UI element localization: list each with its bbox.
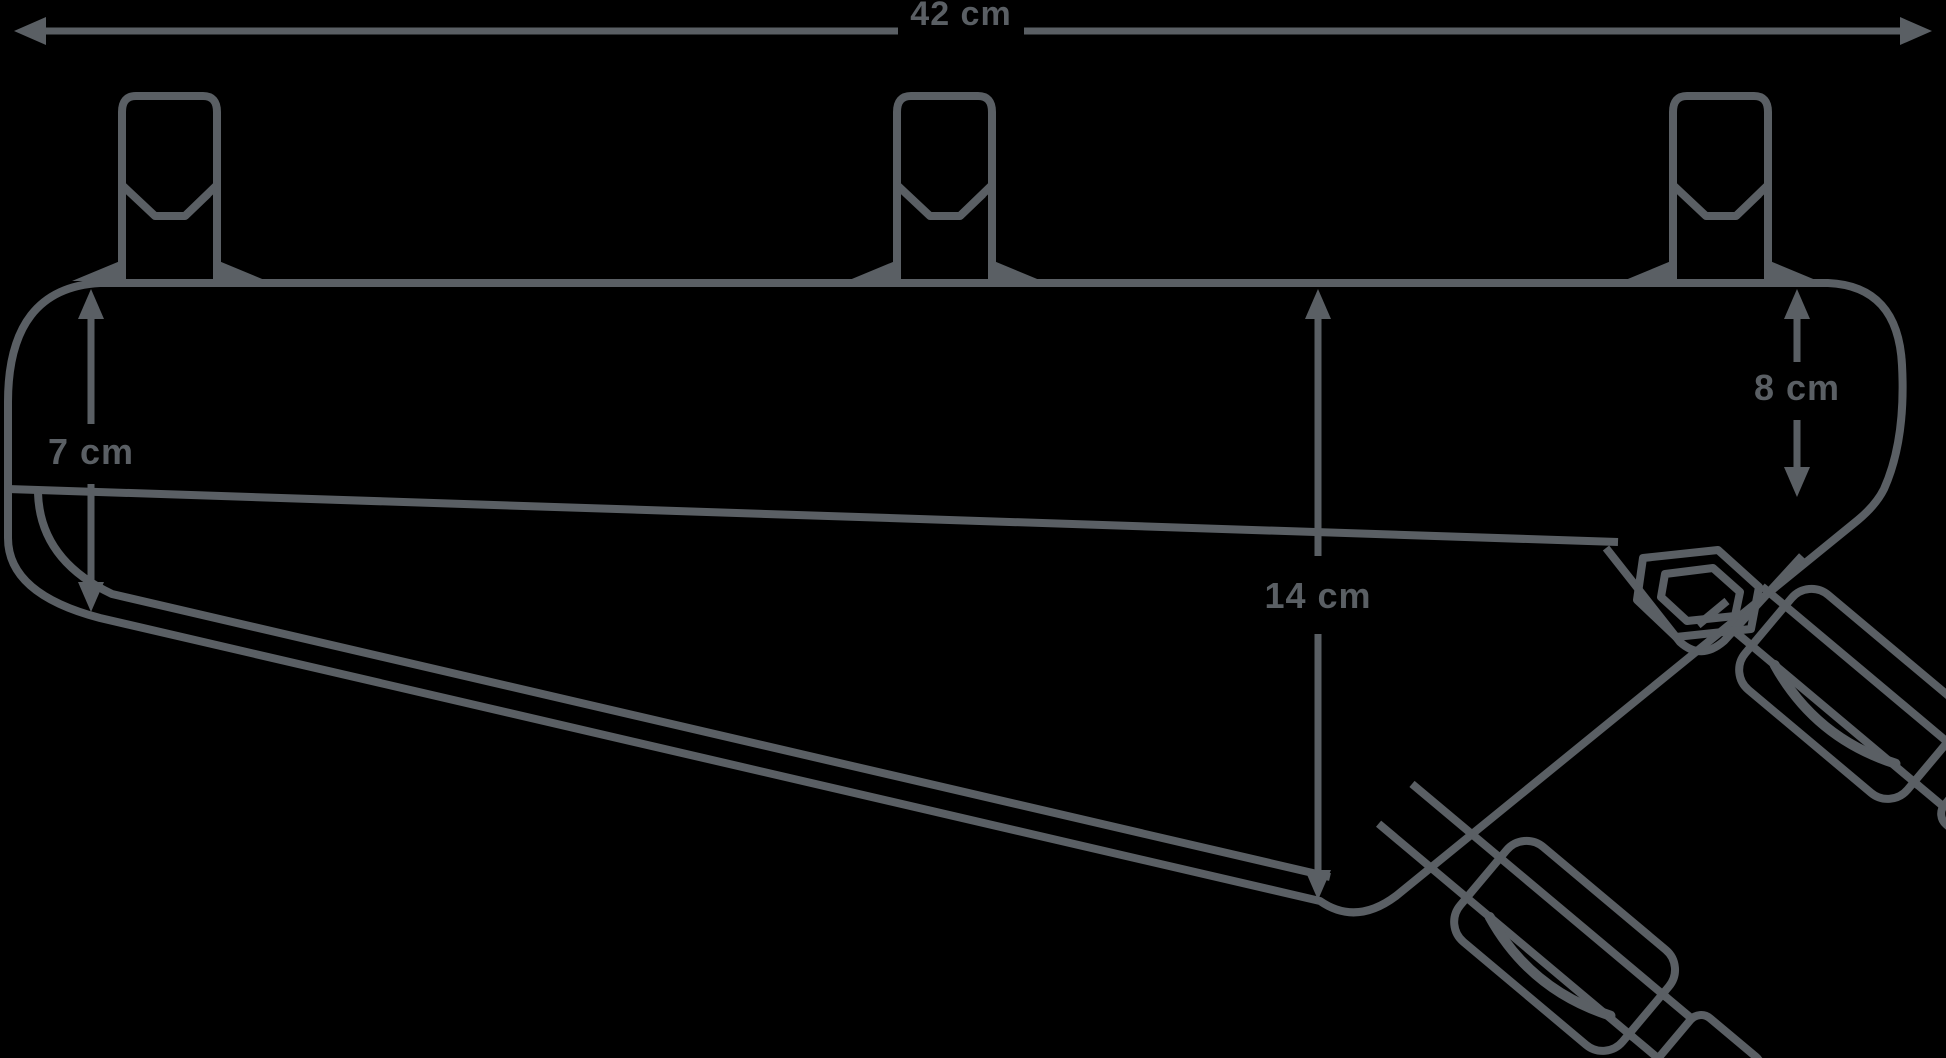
velcro-strap-right bbox=[1623, 96, 1818, 283]
strap-band-edge bbox=[1412, 784, 1667, 998]
strap-tail-edge bbox=[1663, 994, 1692, 1018]
arrow-up-icon bbox=[1784, 289, 1810, 319]
zipper-seam-line bbox=[8, 489, 1618, 542]
buckle-strap-lower bbox=[1355, 756, 1782, 1058]
right-height-label: 8 cm bbox=[1754, 367, 1840, 408]
buckle-strap-upper bbox=[1706, 559, 1946, 891]
ladderlock-buckle-inner bbox=[1661, 568, 1740, 621]
frame-bag-dimension-diagram: 42 cm bbox=[0, 0, 1946, 1058]
strap-tail-edge bbox=[1629, 1034, 1658, 1058]
left-height-dimension: 7 cm bbox=[48, 289, 134, 612]
arrow-down-icon bbox=[78, 582, 104, 612]
right-height-dimension: 8 cm bbox=[1754, 289, 1840, 497]
strap-gusset-right bbox=[214, 259, 267, 281]
strap-gusset-right bbox=[1765, 259, 1818, 281]
center-height-dimension: 14 cm bbox=[1264, 289, 1371, 900]
strap-gusset-right bbox=[989, 259, 1042, 281]
arrow-up-icon bbox=[78, 289, 104, 319]
strap-fold-inner-line bbox=[185, 194, 208, 216]
bottom-panel-seam-line bbox=[38, 493, 1330, 877]
bag-body bbox=[8, 283, 1903, 912]
width-dimension-arrow: 42 cm bbox=[14, 0, 1932, 45]
strap-outline bbox=[897, 96, 992, 283]
strap-tail-edge bbox=[1914, 782, 1943, 806]
strap-end-cap bbox=[1650, 1009, 1766, 1058]
arrow-left-icon bbox=[14, 17, 46, 45]
strap-gusset-left bbox=[72, 259, 125, 281]
center-height-label: 14 cm bbox=[1264, 575, 1371, 616]
strap-outline bbox=[1673, 96, 1768, 283]
velcro-strap-left bbox=[72, 96, 267, 283]
strap-fold-inner-line bbox=[960, 194, 983, 216]
arrow-down-icon bbox=[1784, 467, 1810, 497]
strap-end-cap bbox=[1935, 757, 1946, 872]
velcro-strap-center bbox=[847, 96, 1042, 283]
arrow-up-icon bbox=[1305, 289, 1331, 319]
strap-fold-inner-line bbox=[1736, 194, 1759, 216]
left-height-label: 7 cm bbox=[48, 431, 134, 472]
strap-gusset-left bbox=[1623, 259, 1676, 281]
arrow-right-icon bbox=[1900, 17, 1932, 45]
strap-outline bbox=[122, 96, 217, 283]
bag-outline bbox=[8, 283, 1903, 912]
slider-buckle bbox=[1444, 830, 1686, 1058]
strap-gusset-left bbox=[847, 259, 900, 281]
slider-buckle bbox=[1729, 578, 1946, 809]
width-dimension-label: 42 cm bbox=[910, 0, 1011, 33]
